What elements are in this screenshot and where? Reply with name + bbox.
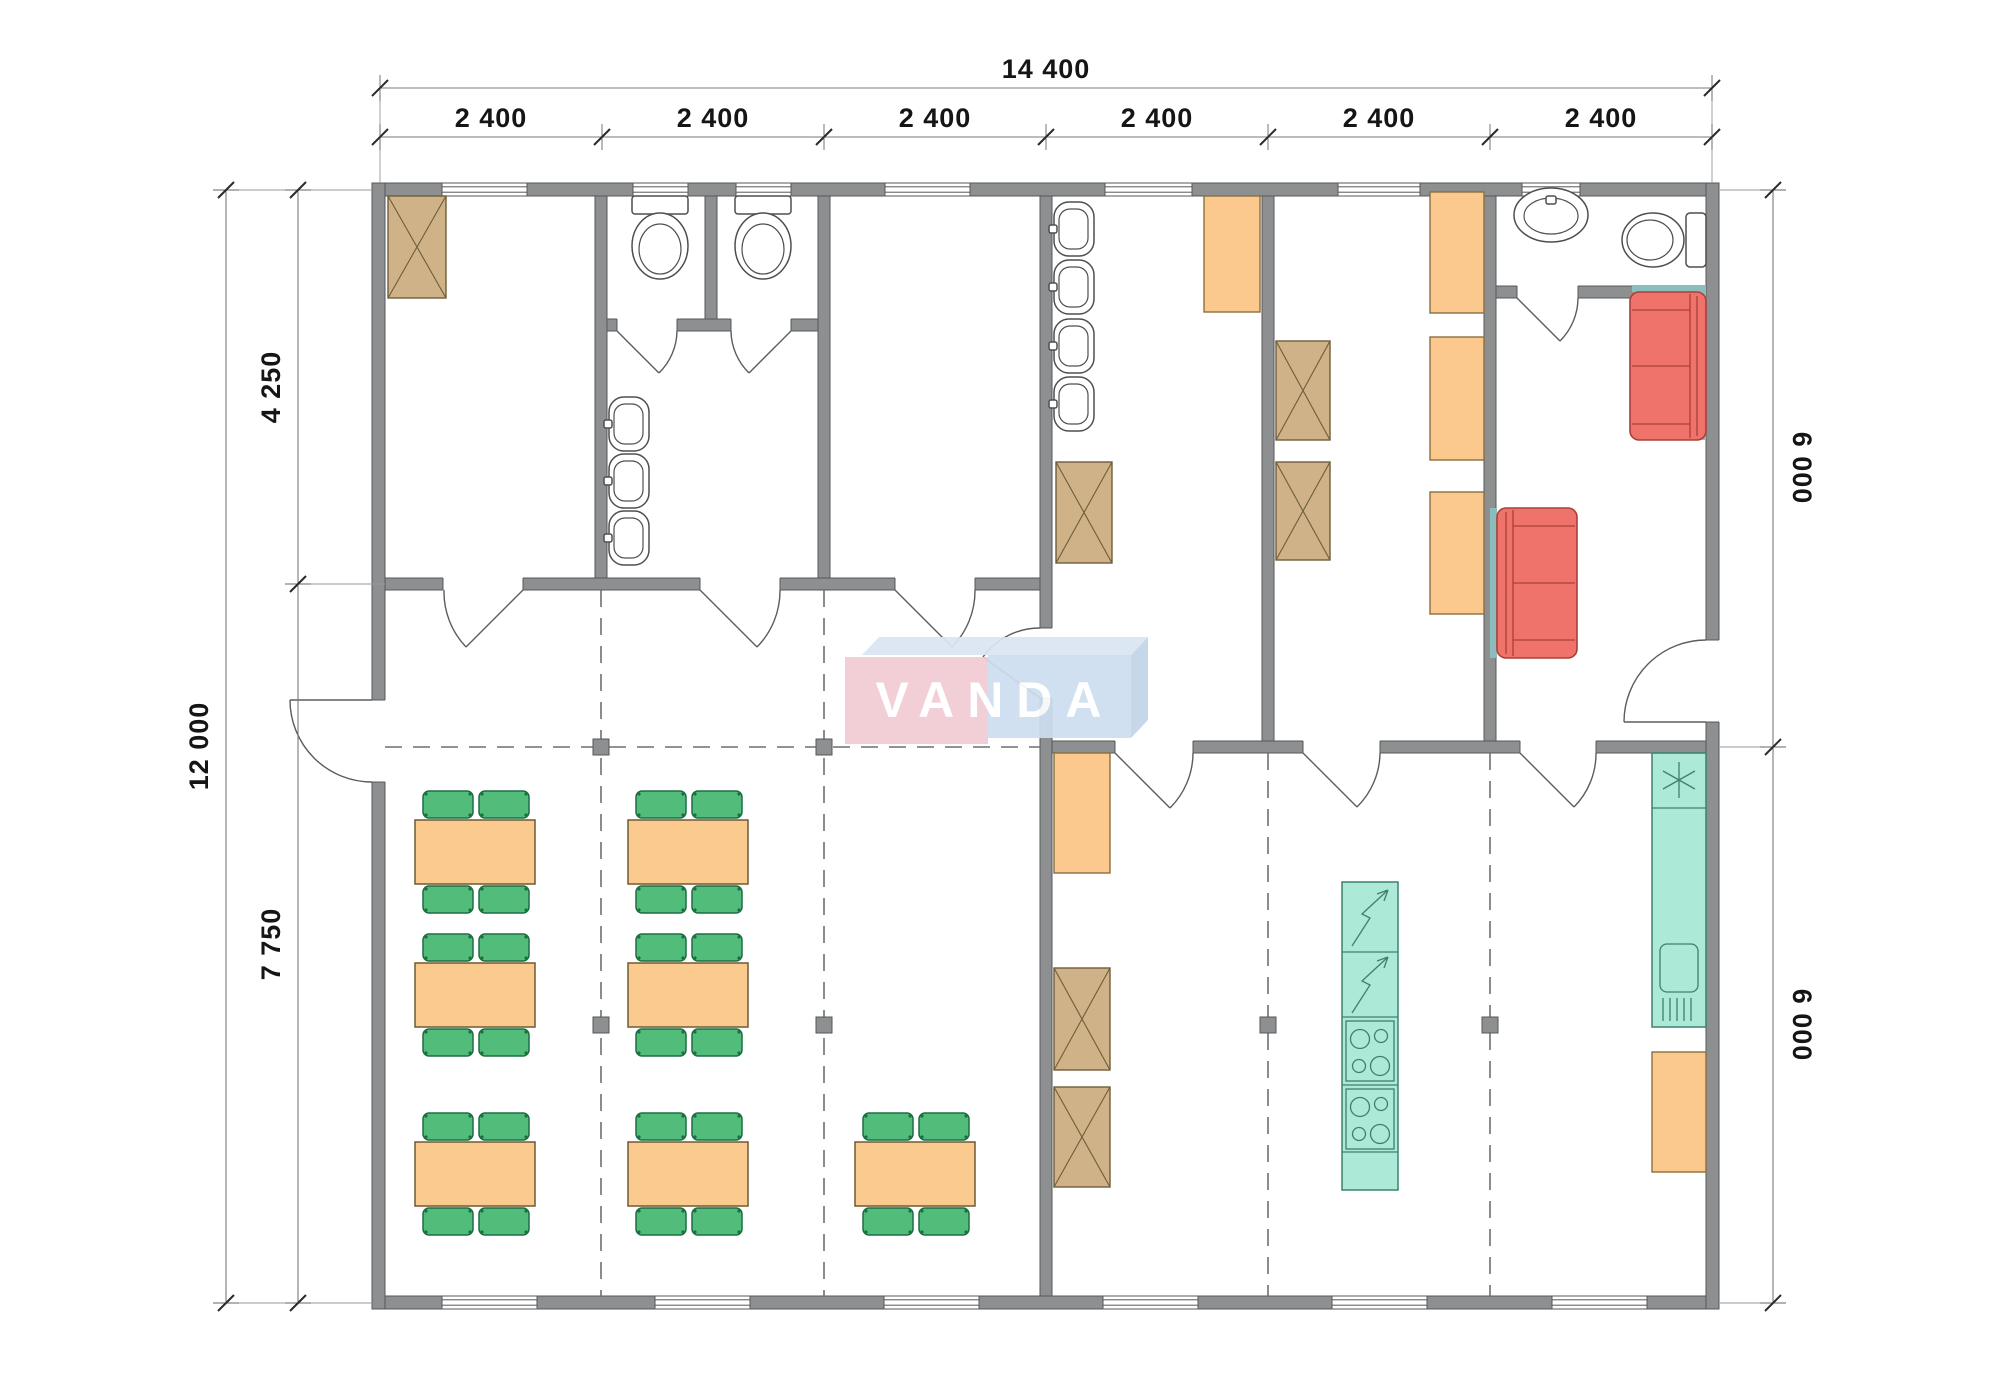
exterior-wall-top [372, 183, 1719, 196]
window-icon [736, 183, 791, 196]
grid-marker [1260, 1017, 1276, 1033]
dim-right-upper: 6 000 [1787, 432, 1817, 505]
stall-divider-wall [705, 196, 717, 331]
dim-total-width: 14 400 [1002, 54, 1091, 84]
window-icon [442, 183, 527, 196]
window-icon [884, 1296, 979, 1309]
sofa-icon [1497, 508, 1577, 658]
window-icon [1552, 1296, 1647, 1309]
locker-icon [1054, 753, 1110, 873]
dim-module: 2 400 [1121, 103, 1194, 133]
window-icon [655, 1296, 750, 1309]
door-icon [1517, 298, 1578, 341]
interior-wall [1040, 196, 1052, 1296]
dim-module: 2 400 [899, 103, 972, 133]
locker-icon [1430, 337, 1484, 460]
wall-finish-strip [1632, 285, 1706, 292]
wardrobe-icon [1276, 462, 1330, 560]
floor-plan-page: 14 400 2 400 2 400 2 400 2 400 2 400 2 4… [0, 0, 2000, 1380]
interior-wall [818, 196, 830, 584]
grid-marker [593, 1017, 609, 1033]
window-icon [1332, 1296, 1427, 1309]
wardrobe-icon [1056, 462, 1112, 563]
dim-module: 2 400 [1343, 103, 1416, 133]
grid-marker [1482, 1017, 1498, 1033]
dim-module: 2 400 [1565, 103, 1638, 133]
sofa-icon [1630, 292, 1706, 440]
walls [372, 183, 1719, 1309]
logo-text: VANDA [875, 672, 1114, 728]
door-icon [1520, 753, 1596, 807]
wardrobe-icon [1054, 968, 1110, 1070]
dim-module: 2 400 [455, 103, 528, 133]
floor-plan-canvas: 14 400 2 400 2 400 2 400 2 400 2 400 2 4… [0, 0, 2000, 1380]
pedestal-sink-icon [1514, 188, 1588, 242]
dim-total-depth: 12 000 [184, 702, 214, 791]
kitchen-island [1342, 882, 1398, 1190]
locker-icon [1430, 492, 1484, 614]
locker-icon [1652, 1052, 1706, 1172]
door-icon [290, 700, 372, 782]
wardrobe-icon [1276, 341, 1330, 440]
interior-wall [1484, 196, 1496, 747]
door-icon [1115, 753, 1193, 808]
brand-logo: VANDA [845, 637, 1148, 744]
wardrobe-icon [1054, 1087, 1110, 1187]
locker-icon [1204, 196, 1260, 312]
logo-top-face [862, 637, 1148, 655]
locker-icon [1430, 192, 1484, 313]
lounge-furniture [1490, 285, 1706, 658]
door-icon [444, 590, 523, 647]
window-icon [1338, 183, 1420, 196]
grid-marker [816, 1017, 832, 1033]
grid-marker [593, 739, 609, 755]
door-icon [700, 590, 780, 647]
exterior-wall-bottom [372, 1296, 1719, 1309]
dim-module: 2 400 [677, 103, 750, 133]
window-icon [442, 1296, 537, 1309]
door-icon [731, 331, 791, 373]
wall-finish-strip [1490, 508, 1497, 658]
grid-marker [816, 739, 832, 755]
door-icon [617, 331, 677, 373]
wardrobe-icon [388, 196, 446, 298]
dim-right-lower: 6 000 [1787, 989, 1817, 1062]
door-icon [1624, 640, 1706, 722]
toilet-icon [1622, 213, 1706, 267]
window-icon [1105, 183, 1192, 196]
dim-left-upper: 4 250 [256, 351, 286, 424]
dining-area [415, 791, 975, 1235]
kitchen-counter [1652, 753, 1706, 1027]
window-icon [1103, 1296, 1198, 1309]
dim-left-lower: 7 750 [256, 908, 286, 981]
window-icon [885, 183, 970, 196]
interior-wall [1262, 196, 1274, 747]
window-icon [633, 183, 688, 196]
door-icon [1303, 753, 1380, 807]
interior-wall [595, 196, 607, 584]
exterior-wall-right [1706, 183, 1719, 1309]
